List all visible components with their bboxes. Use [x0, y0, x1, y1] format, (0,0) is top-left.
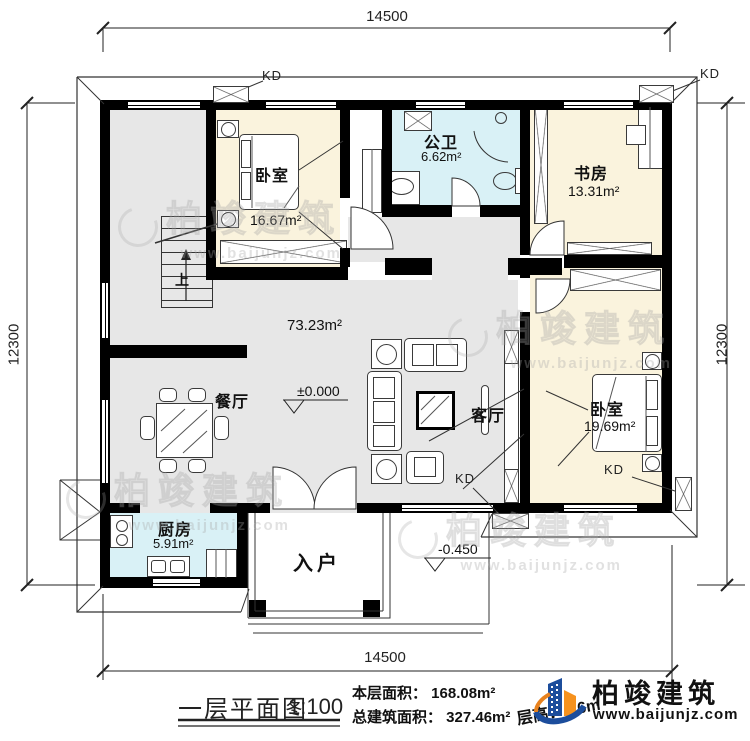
wall [520, 312, 530, 503]
floor-plan-canvas: 14500 14500 12300 12300 KD KD KD KD 卧室 1… [0, 0, 750, 741]
dim-left: 12300 [6, 310, 23, 380]
kd-label: KD [262, 68, 282, 83]
wall [206, 110, 216, 280]
wall [382, 110, 392, 205]
brand-logo: 柏竣建筑 www.baijunjz.com [530, 670, 750, 736]
kd-label: KD [700, 66, 720, 81]
wall [340, 248, 350, 267]
washing-machine [404, 111, 432, 131]
loveseat-cushion [412, 344, 434, 366]
wall [637, 503, 672, 513]
level-entry: -0.450 [438, 541, 478, 557]
sheet-scale: 1:100 [288, 694, 343, 720]
brand-building-icon [530, 672, 590, 734]
sink-basin [389, 178, 414, 195]
bed2-pillow [646, 380, 658, 410]
bedroom2-area: 19.69m² [584, 418, 635, 434]
chair [188, 388, 206, 402]
bathroom-area: 6.62m² [421, 149, 461, 164]
wall [493, 503, 564, 513]
sofa-cushion [373, 377, 395, 399]
window [564, 100, 633, 110]
kitchen-area: 5.91m² [153, 536, 193, 551]
shower-drain [495, 112, 507, 124]
hall-floor [348, 217, 520, 262]
brand-website: www.baijunjz.com [593, 706, 738, 723]
chair [140, 416, 155, 440]
flue-box [675, 477, 692, 511]
study-cabinet [567, 242, 652, 255]
wall [357, 503, 402, 513]
hall-neck-floor [432, 262, 508, 280]
chair [214, 416, 229, 440]
wall [520, 268, 530, 278]
bedroom1-area: 16.67m² [250, 212, 301, 228]
porch-column [363, 600, 380, 617]
bedroom2-name: 卧室 [590, 396, 624, 420]
sofa-cushion [373, 425, 395, 447]
wall [340, 110, 350, 198]
nightstand [217, 120, 239, 138]
kd-label: KD [455, 471, 475, 486]
wardrobe [220, 240, 347, 264]
bookshelf [534, 106, 548, 224]
wall [564, 255, 662, 268]
window [416, 100, 465, 110]
porch-column [249, 600, 266, 617]
loveseat-cushion [436, 344, 458, 366]
chair [159, 388, 177, 402]
living-floor [206, 280, 518, 503]
window [128, 100, 200, 110]
window [402, 503, 493, 513]
total-area-text: 总建筑面积： 327.46m² [352, 706, 510, 727]
level-main: ±0.000 [297, 383, 340, 399]
chair [159, 459, 177, 473]
nightstand [217, 210, 239, 228]
coffee-table [416, 391, 455, 430]
window [153, 577, 200, 588]
dim-top: 14500 [351, 8, 423, 25]
window [266, 100, 336, 110]
wall [103, 503, 140, 513]
wall [100, 100, 110, 588]
wall [662, 100, 672, 513]
bed1-pillow [241, 140, 251, 168]
wall [237, 503, 248, 588]
watermark-swoosh-icon [391, 512, 444, 565]
dining-table [156, 403, 213, 458]
flue-box [492, 513, 529, 529]
wall [103, 345, 247, 358]
entry-label: 入户 [293, 547, 341, 576]
wall [385, 258, 432, 275]
stairs-up-label: 上 [175, 270, 189, 290]
chair [188, 459, 206, 473]
study-area: 13.31m² [568, 183, 619, 199]
partition-hatch [504, 469, 519, 503]
plant-stand [371, 454, 402, 484]
window [564, 503, 637, 513]
kitchen-door-opening [140, 503, 210, 513]
nightstand [642, 454, 662, 472]
stove [110, 515, 133, 548]
living-area: 73.23m² [287, 317, 342, 334]
sofa-cushion [373, 401, 395, 423]
study-name: 书房 [574, 160, 608, 184]
hall-cabinet [362, 149, 382, 213]
partition-hatch [504, 330, 519, 364]
dim-bottom: 14500 [349, 649, 421, 666]
flue-box [639, 85, 674, 103]
desk [626, 125, 646, 145]
bedroom1-name: 卧室 [255, 162, 289, 186]
living-label: 客厅 [471, 402, 505, 426]
dim-right: 12300 [714, 310, 731, 380]
kitchen-sink [147, 556, 190, 577]
plant-stand [371, 339, 402, 369]
bed1-pillow [241, 172, 251, 200]
nightstand [642, 352, 662, 370]
wall [508, 258, 562, 275]
dining-label: 餐厅 [215, 388, 249, 412]
wall [382, 205, 452, 217]
kd-label: KD [604, 462, 624, 477]
entry-door-opening [270, 503, 357, 513]
wardrobe [570, 269, 661, 291]
floor-area-text: 本层面积： 168.08m² [352, 682, 495, 703]
toilet-bowl [493, 172, 517, 190]
window [100, 283, 110, 338]
wall [206, 267, 348, 280]
wall [520, 110, 530, 255]
armchair-cushion [414, 457, 436, 477]
window [100, 400, 110, 483]
flue-box [213, 86, 249, 103]
bed2-pillow [646, 416, 658, 446]
fridge [206, 549, 237, 578]
